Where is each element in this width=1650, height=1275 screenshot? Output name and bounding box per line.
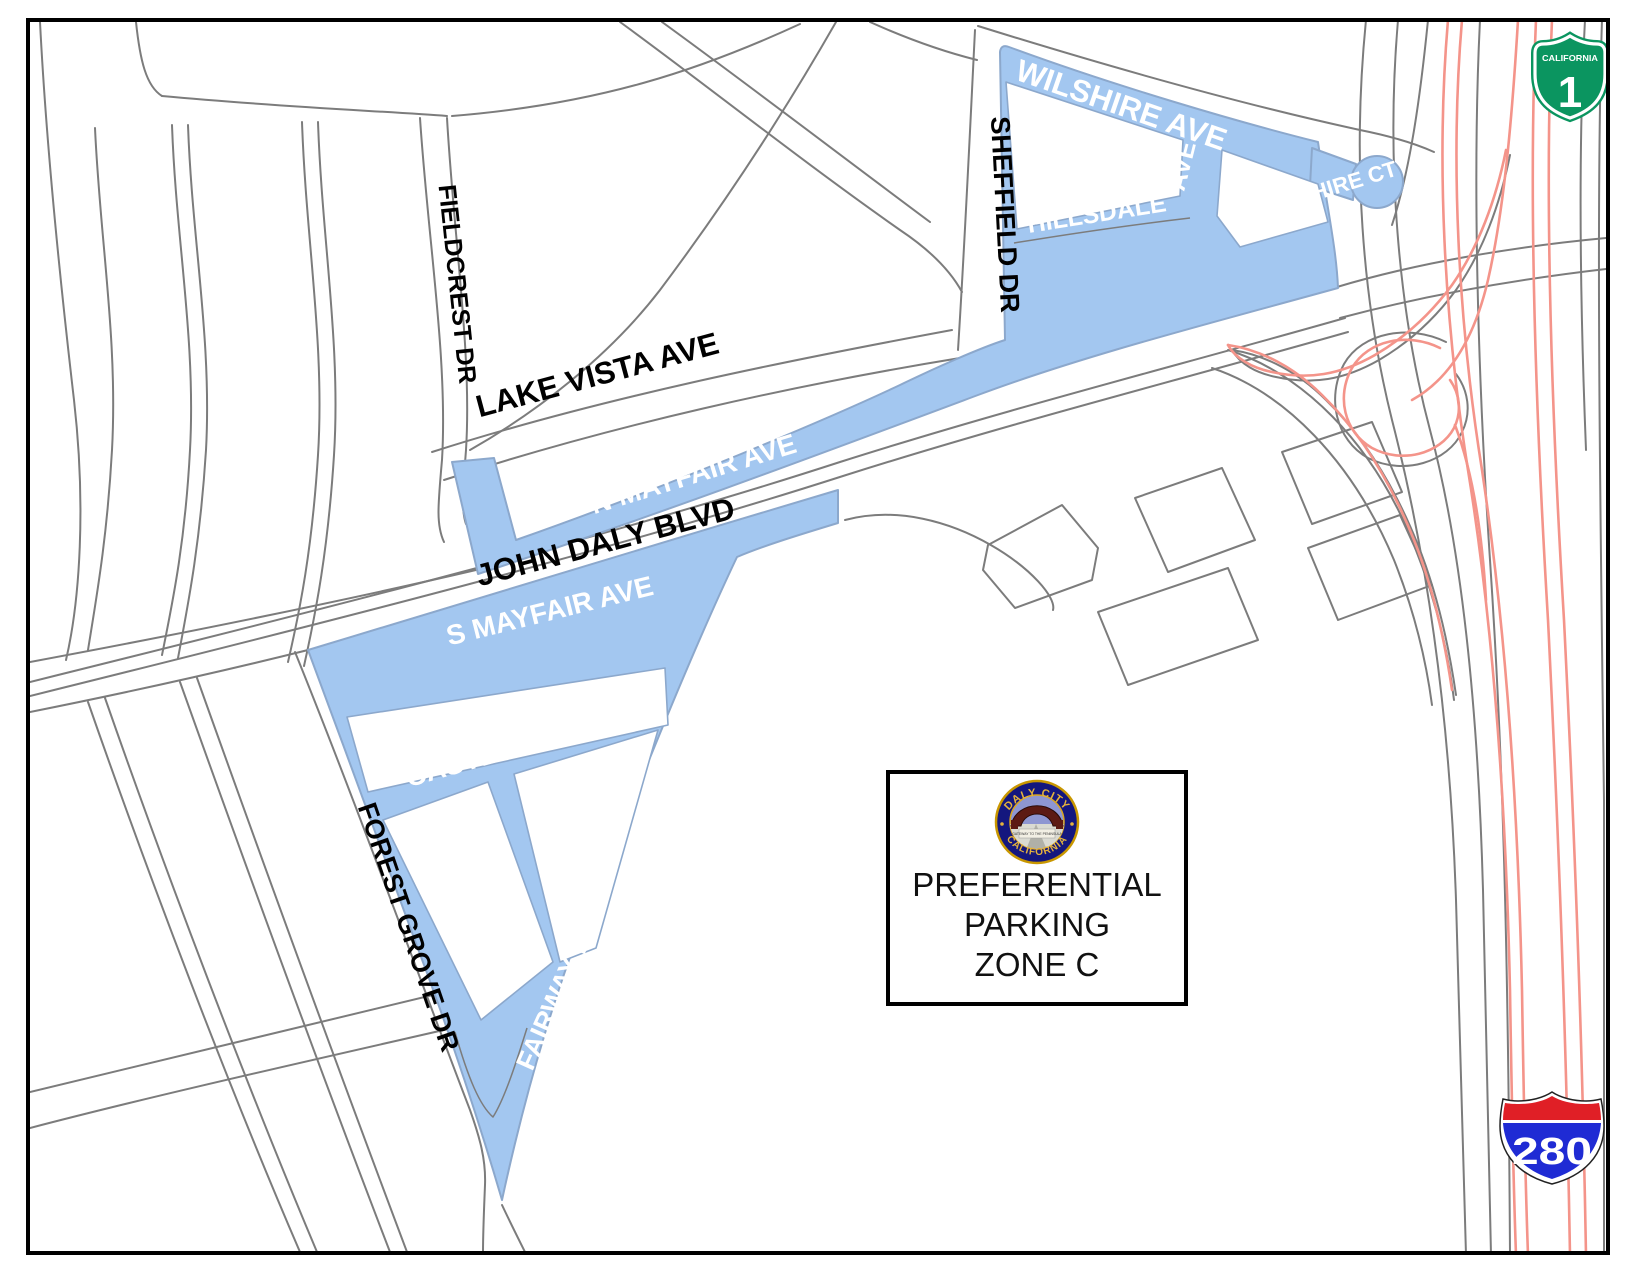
seal-side-dot [1070,822,1074,826]
legend-line-1: PREFERENTIAL [912,866,1161,903]
seal-banner-text: GATEWAY TO THE PENINSULA [1012,832,1062,836]
ca-shield-caption: CALIFORNIA [1542,53,1598,63]
legend-line-3: ZONE C [975,946,1100,983]
ca-shield-route-number: 1 [1558,68,1582,117]
i280-route-number: 280 [1512,1131,1592,1173]
interstate-280-shield: 280 [1500,1092,1604,1184]
seal-arch-pillar [1011,820,1018,829]
seal-side-dot [1000,822,1004,826]
daly-city-seal: GATEWAY TO THE PENINSULA DALY CITY CALIF… [996,781,1078,863]
map-canvas: WILSHIRE AVE HILLSDALE AVE WILSHIRE CT S… [0,0,1650,1275]
ca-route-1-shield: CALIFORNIA 1 [1535,36,1605,118]
legend-line-2: PARKING [964,906,1110,943]
parking-zone-map: WILSHIRE AVE HILLSDALE AVE WILSHIRE CT S… [0,0,1650,1275]
seal-arch-pillar [1056,820,1063,829]
legend-box: GATEWAY TO THE PENINSULA DALY CITY CALIF… [888,772,1186,1004]
